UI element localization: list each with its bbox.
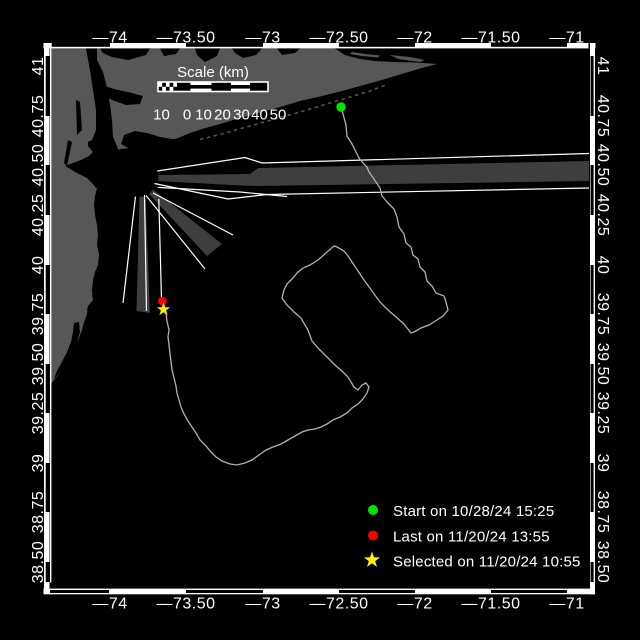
svg-text:39.75: 39.75 (594, 293, 611, 336)
svg-text:Last on 11/20/24 13:55: Last on 11/20/24 13:55 (393, 529, 550, 546)
svg-text:40.25: 40.25 (594, 194, 611, 237)
svg-text:30: 30 (233, 107, 250, 124)
svg-text:40: 40 (30, 256, 47, 275)
svg-text:0: 0 (183, 107, 191, 124)
svg-text:39.25: 39.25 (30, 392, 47, 435)
svg-text:10: 10 (153, 107, 170, 124)
svg-text:40: 40 (594, 256, 611, 275)
svg-text:—73.50: —73.50 (156, 30, 215, 47)
svg-text:—71.50: —71.50 (461, 596, 520, 613)
svg-text:50: 50 (270, 107, 287, 124)
svg-text:41: 41 (594, 57, 611, 76)
svg-text:40.50: 40.50 (30, 144, 47, 187)
svg-text:Start on 10/28/24 15:25: Start on 10/28/24 15:25 (393, 503, 554, 520)
svg-text:39.25: 39.25 (594, 392, 611, 435)
svg-text:—73: —73 (245, 596, 280, 613)
svg-text:39.75: 39.75 (30, 293, 47, 336)
svg-text:Selected on 11/20/24 10:55: Selected on 11/20/24 10:55 (393, 554, 581, 571)
svg-text:38.75: 38.75 (30, 491, 47, 534)
svg-text:—71: —71 (549, 30, 584, 47)
svg-text:—74: —74 (92, 596, 127, 613)
svg-text:38.50: 38.50 (30, 541, 47, 584)
svg-text:41: 41 (30, 57, 47, 76)
svg-text:20: 20 (214, 107, 231, 124)
svg-text:40.50: 40.50 (594, 144, 611, 187)
svg-text:Scale (km): Scale (km) (177, 64, 249, 81)
svg-text:—71.50: —71.50 (461, 30, 520, 47)
svg-text:—73.50: —73.50 (156, 596, 215, 613)
svg-text:39: 39 (594, 454, 611, 473)
svg-text:—73: —73 (245, 30, 280, 47)
svg-text:10: 10 (195, 107, 212, 124)
svg-text:40.75: 40.75 (30, 95, 47, 138)
svg-text:40.25: 40.25 (30, 194, 47, 237)
svg-text:39: 39 (30, 454, 47, 473)
svg-text:—74: —74 (92, 30, 127, 47)
svg-text:39.50: 39.50 (30, 343, 47, 386)
svg-text:38.75: 38.75 (594, 491, 611, 534)
svg-text:—72: —72 (397, 596, 432, 613)
svg-text:39.50: 39.50 (594, 343, 611, 386)
svg-text:40.75: 40.75 (594, 95, 611, 138)
svg-text:—71: —71 (549, 596, 584, 613)
svg-text:—72.50: —72.50 (309, 30, 368, 47)
svg-text:—72.50: —72.50 (309, 596, 368, 613)
svg-text:40: 40 (251, 107, 268, 124)
svg-text:—72: —72 (397, 30, 432, 47)
svg-text:38.50: 38.50 (594, 541, 611, 584)
